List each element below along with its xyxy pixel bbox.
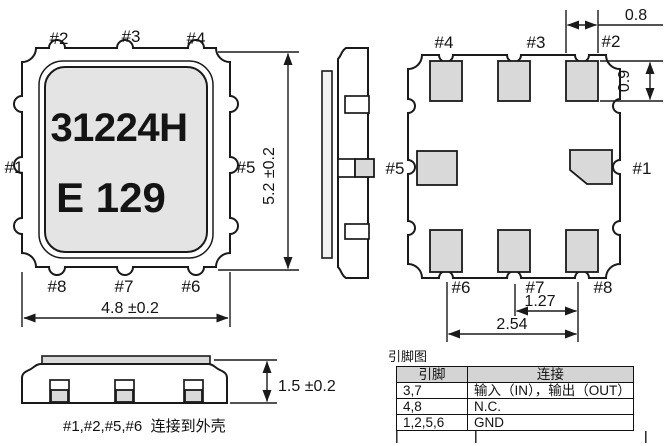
pin-cell: 4,8	[397, 399, 468, 415]
bottom-pin-label-8: #8	[594, 278, 613, 297]
lid-top	[45, 67, 207, 252]
table-row: 3,7 输入（IN），输出（OUT）	[397, 383, 634, 399]
pin-map-table: 引脚 连接 3,7 输入（IN），输出（OUT） 4,8 N.C. 1,2,5,…	[396, 366, 634, 431]
table-row: 1,2,5,6 GND	[397, 415, 634, 431]
top-pin-label-5: #5	[237, 158, 256, 177]
front-view	[22, 356, 227, 403]
connection-column-header: 连接	[468, 367, 634, 383]
front-pad-2	[115, 380, 134, 403]
top-pin-label-8: #8	[48, 277, 67, 296]
dim-pad-width-text: 0.8	[625, 7, 647, 24]
side-pad-mid-outer	[355, 159, 374, 177]
connection-cell: GND	[468, 415, 634, 431]
top-pin-label-4: #4	[187, 29, 206, 48]
dim-body-height-text: 5.2 ±0.2	[261, 147, 278, 205]
pin-map-header-row: 引脚 连接	[397, 367, 634, 383]
connection-cell: N.C.	[468, 399, 634, 415]
pad-3	[498, 61, 530, 101]
pad-5	[417, 151, 457, 185]
dim-pad-height-text: 0.9	[616, 70, 633, 92]
pad-7	[498, 230, 530, 272]
side-pad-mid-inner	[338, 159, 355, 177]
marking-line1: 31224H	[50, 106, 187, 150]
top-pin-label-6: #6	[182, 277, 201, 296]
side-pad-bottom	[345, 224, 369, 239]
dim-pitch1-text: 1.27	[524, 293, 555, 310]
top-view: 31224H E 129 #2 #3 #4 #1 #5 #8 #7 #6	[5, 27, 256, 296]
pin-map-title: 引脚图	[388, 346, 634, 365]
side-pad-top	[345, 96, 369, 113]
dim-pitch2-text: 2.54	[496, 316, 527, 333]
top-pin-label-3: #3	[122, 27, 141, 46]
bottom-pin-label-2: #2	[602, 32, 621, 51]
bottom-pin-label-1: #1	[633, 159, 652, 178]
bottom-pin-label-3: #3	[527, 33, 546, 52]
pin-cell: 1,2,5,6	[397, 415, 468, 431]
side-lid-strip	[322, 71, 332, 258]
table-row: 4,8 N.C.	[397, 399, 634, 415]
dim-total-height: 1.5 ±0.2	[214, 360, 336, 403]
front-pad-3	[184, 380, 203, 403]
bottom-view: #4 #3 #2 #5 #1 #6 #7 #8	[386, 32, 652, 297]
pin-map-block: 引脚图 引脚 连接 3,7 输入（IN），输出（OUT） 4,8 N.C. 1,…	[388, 346, 634, 431]
pad-2	[566, 61, 598, 101]
marking-line2: E 129	[56, 174, 166, 221]
top-pin-label-7: #7	[115, 277, 134, 296]
dim-body-width-text: 4.8 ±0.2	[101, 300, 159, 317]
bottom-pin-label-5: #5	[386, 159, 405, 178]
dim-total-height-text: 1.5 ±0.2	[278, 378, 336, 395]
side-view	[322, 48, 374, 278]
connection-cell: 输入（IN），输出（OUT）	[468, 383, 634, 399]
front-lid-strip	[42, 356, 210, 364]
top-pin-label-1: #1	[5, 158, 24, 177]
pin-column-header: 引脚	[397, 367, 468, 383]
bottom-pin-label-6: #6	[452, 278, 471, 297]
package-datasheet-drawing: 31224H E 129 #2 #3 #4 #1 #5 #8 #7 #6 5.2…	[0, 0, 666, 446]
bottom-pin-label-4: #4	[435, 33, 454, 52]
top-pin-label-2: #2	[50, 29, 69, 48]
pad-4	[430, 61, 462, 101]
pad-6	[430, 230, 462, 272]
front-pad-1	[50, 380, 69, 403]
pad-8	[566, 230, 598, 272]
pin-cell: 3,7	[397, 383, 468, 399]
table-stub-lines	[397, 431, 646, 443]
case-connection-note: #1,#2,#5,#6 连接到外壳	[63, 415, 226, 436]
